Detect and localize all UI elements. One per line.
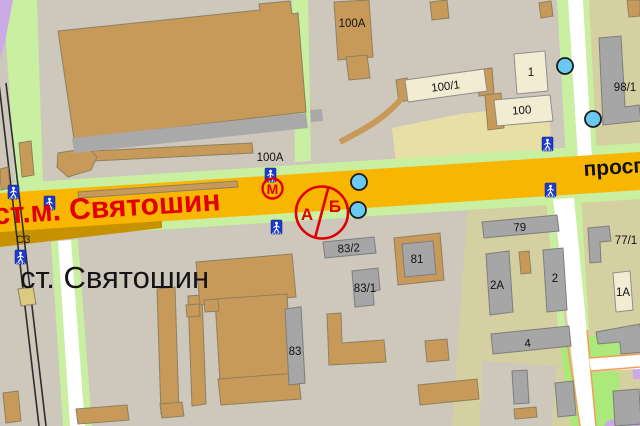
map-canvas[interactable]: М А Б ст.м. Святошин ст. Святошин проспе…	[0, 0, 640, 426]
building-100a-north	[334, 0, 373, 60]
metro-m-letter: М	[267, 181, 279, 197]
map-viewport[interactable]: М А Б ст.м. Святошин ст. Святошин проспе…	[0, 0, 640, 426]
transport-stop-dot[interactable]	[350, 202, 366, 218]
small-building	[430, 0, 449, 20]
building-comb	[613, 389, 640, 426]
small-building	[627, 0, 640, 17]
building-label: 98/1	[614, 82, 636, 94]
small-building	[204, 299, 219, 312]
building-right-edge	[555, 381, 576, 417]
building-label: 1	[528, 67, 534, 79]
small-building	[186, 304, 200, 317]
row-building	[157, 287, 179, 414]
section-b-letter: Б	[329, 197, 341, 216]
building-sliver	[19, 141, 34, 177]
transport-stop-dot[interactable]	[351, 174, 367, 190]
pedestrian-crossing-icon[interactable]	[271, 220, 282, 234]
building-vertical	[512, 370, 529, 404]
building-label: 77/1	[615, 235, 637, 247]
transport-stop-dot[interactable]	[585, 111, 601, 127]
building-label: 83/1	[354, 283, 376, 295]
building-label: 83	[289, 346, 302, 358]
building-label: 1А	[616, 287, 630, 299]
compass-label: СЗ	[16, 234, 31, 246]
building-label: 100А	[257, 152, 284, 164]
building-label: 79	[513, 222, 526, 235]
small-building	[3, 391, 21, 423]
platform-fragment	[310, 109, 323, 122]
building-label: 2	[552, 273, 558, 285]
building-100a-annex	[346, 55, 370, 80]
building-label: 83/2	[337, 242, 360, 256]
small-building	[160, 402, 184, 418]
transport-stop-dot[interactable]	[557, 58, 573, 74]
small-building	[514, 407, 537, 419]
pedestrian-crossing-icon[interactable]	[545, 183, 556, 197]
small-building	[519, 251, 531, 274]
building-83-main	[215, 294, 292, 382]
building-label: 100А	[339, 18, 366, 30]
small-building	[539, 1, 553, 18]
section-a-letter: А	[301, 205, 313, 224]
building-label: 81	[411, 254, 424, 266]
building-label: 100	[512, 104, 532, 117]
building-label: 2А	[490, 280, 504, 292]
rail-station-label: ст. Святошин	[20, 260, 209, 295]
pedestrian-crossing-icon[interactable]	[542, 137, 553, 151]
small-building	[425, 339, 449, 362]
